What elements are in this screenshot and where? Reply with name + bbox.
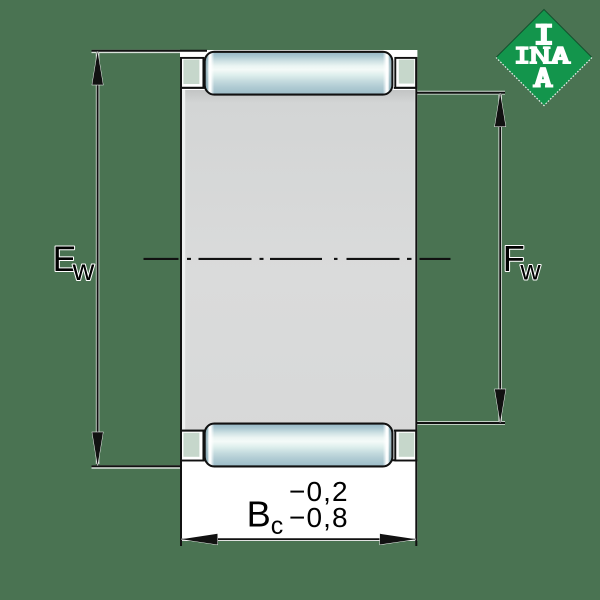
svg-text:−0,8: −0,8 (289, 502, 349, 533)
svg-text:B: B (247, 494, 271, 535)
svg-text:c: c (271, 512, 284, 540)
svg-text:w: w (519, 255, 541, 286)
svg-text:w: w (72, 254, 95, 287)
